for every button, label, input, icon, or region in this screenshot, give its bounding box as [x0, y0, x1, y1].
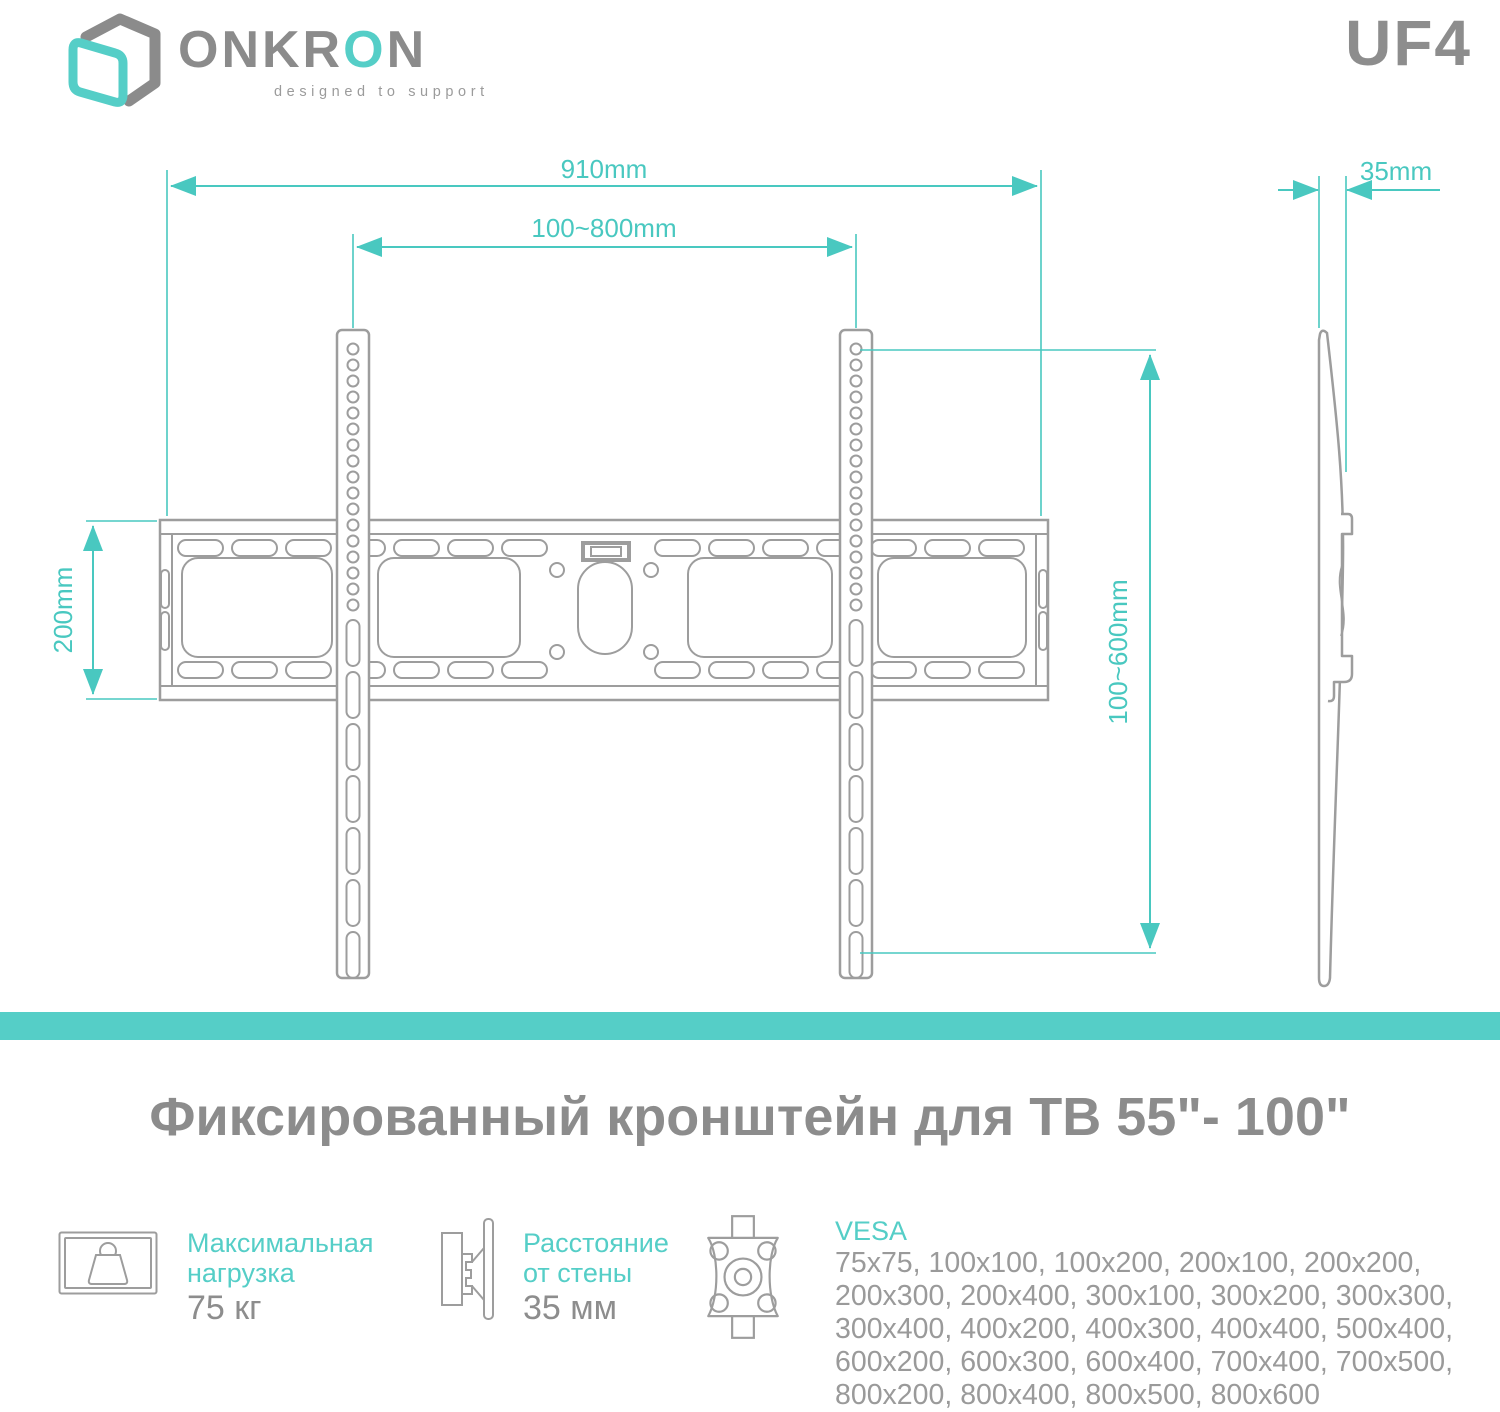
left-bracket-bar	[337, 330, 369, 978]
wall-distance-spec: Расстояние от стены 35 мм	[523, 1228, 669, 1328]
wall-distance-icon	[440, 1218, 500, 1325]
right-bracket-bar	[840, 330, 872, 978]
vesa-label: VESA	[835, 1215, 1453, 1247]
dim-plate-height-label: 200mm	[48, 567, 78, 654]
dim-vesa-width: 100~800mm	[353, 213, 856, 328]
vesa-sizes-line: 300x400, 400x200, 400x300, 400x400, 500x…	[835, 1313, 1453, 1346]
max-load-icon	[58, 1231, 158, 1300]
front-view	[160, 330, 1048, 978]
dim-vesa-width-label: 100~800mm	[531, 213, 676, 243]
dim-total-width-label: 910mm	[561, 154, 648, 184]
vesa-spec: VESA 75x75, 100x100, 100x200, 200x100, 2…	[835, 1215, 1453, 1412]
vesa-sizes-line: 800x200, 800x400, 800x500, 800x600	[835, 1379, 1453, 1412]
max-load-value: 75 кг	[187, 1288, 373, 1328]
vesa-sizes-line: 600x200, 600x300, 600x400, 700x400, 700x…	[835, 1346, 1453, 1379]
product-title: Фиксированный кронштейн для ТВ 55"- 100"	[0, 1086, 1500, 1148]
dim-total-width: 910mm	[167, 154, 1041, 516]
vesa-sizes-line: 75x75, 100x100, 100x200, 200x100, 200x20…	[835, 1247, 1453, 1280]
max-load-label-line2: нагрузка	[187, 1258, 373, 1288]
vesa-icon	[693, 1214, 793, 1345]
bubble-level	[583, 543, 629, 560]
wall-distance-label-line1: Расстояние	[523, 1228, 669, 1258]
vesa-sizes-line: 200x300, 200x400, 300x100, 300x200, 300x…	[835, 1280, 1453, 1313]
max-load-label-line1: Максимальная	[187, 1228, 373, 1258]
wall-distance-value: 35 мм	[523, 1288, 669, 1328]
dim-wall-distance: 35mm	[1278, 156, 1440, 472]
dim-plate-height: 200mm	[48, 521, 157, 699]
side-view	[1319, 331, 1352, 986]
divider-band	[0, 1012, 1500, 1040]
dim-vesa-height-label: 100~600mm	[1103, 579, 1133, 724]
dim-wall-distance-label: 35mm	[1360, 156, 1432, 186]
max-load-spec: Максимальная нагрузка 75 кг	[187, 1228, 373, 1328]
wall-distance-label-line2: от стены	[523, 1258, 669, 1288]
technical-drawing: 910mm 100~800mm 200mm 100~600mm 35mm	[0, 0, 1500, 1010]
